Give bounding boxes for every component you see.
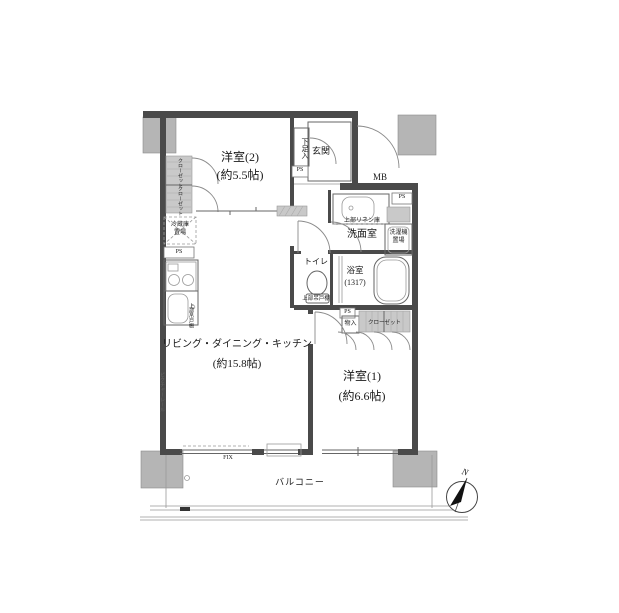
compass (447, 478, 478, 513)
drain (185, 476, 190, 481)
storage-label: 物入 (342, 321, 359, 328)
picture-rail-label: ピクチャーレール (156, 360, 164, 424)
pillar-bottom-right (393, 451, 437, 487)
closet-door-arc (192, 186, 218, 212)
closet-label: クローゼット (359, 320, 410, 326)
faucet (349, 206, 353, 210)
partition-slider (196, 206, 307, 216)
toilet-label: トイレ (301, 257, 331, 266)
ps-label: PS (340, 309, 355, 316)
pillar-bottom-left (141, 451, 183, 488)
upper-cabinet-label: 上部吊戸棚 (296, 296, 336, 302)
burner (183, 275, 194, 286)
balcony-label: バルコニー (260, 477, 340, 487)
bedroom2-size: (約5.5帖) (190, 169, 290, 183)
bathroom-name: 浴室 (337, 266, 373, 276)
stove (166, 262, 196, 291)
ldk-name: リビング・ダイニング・キッチン (162, 339, 312, 351)
shoe-cabinet-label: 下足入 (295, 131, 309, 165)
linen-shelf-label: 上部リネン庫 (331, 218, 393, 225)
washer-label-line1: 洗濯機 (385, 230, 412, 237)
bedroom2-name: 洋室(2) (190, 151, 290, 165)
ldk-size: (約15.8帖) (162, 358, 312, 371)
floorplan-drawing (0, 0, 619, 613)
closet-label: クローゼット (171, 186, 182, 212)
toilet-door-arc (298, 221, 330, 253)
ps-label: PS (392, 194, 412, 201)
closet-label: クローゼット (171, 158, 182, 185)
floorplan-canvas: 洋室(2) (約5.5帖) リビング・ダイニング・キッチン (約15.8帖) 洋… (0, 0, 619, 613)
closet-fan-arc (374, 332, 392, 350)
toilet-bowl (307, 271, 327, 295)
pillar-top-left (143, 117, 176, 153)
upper-cabinet-label: 上部吊戸棚 (184, 297, 193, 333)
fridge-label-line1: 冷蔵庫 (164, 222, 196, 229)
windows (180, 444, 398, 456)
closet-fan-arc (392, 332, 410, 350)
burner (169, 275, 180, 286)
washroom-label: 洗面室 (334, 229, 390, 241)
closet-fan-arc (356, 332, 374, 350)
bathroom-size: (1317) (333, 278, 377, 287)
fridge-label-line2: 置場 (164, 230, 196, 237)
entry-door-arc (357, 126, 399, 168)
meter-box-label: MB (360, 172, 400, 182)
pillar-top-right (398, 115, 436, 155)
bedroom1-size: (約6.6帖) (312, 390, 412, 404)
bedroom1-name: 洋室(1) (312, 370, 412, 384)
wash-basin (342, 197, 374, 220)
washer-label-line2: 置場 (385, 238, 412, 245)
balcony-hatch (180, 507, 190, 511)
fix-window-label: FIX (216, 455, 240, 462)
ps-label: PS (292, 167, 308, 174)
ps-label: PS (164, 249, 194, 256)
